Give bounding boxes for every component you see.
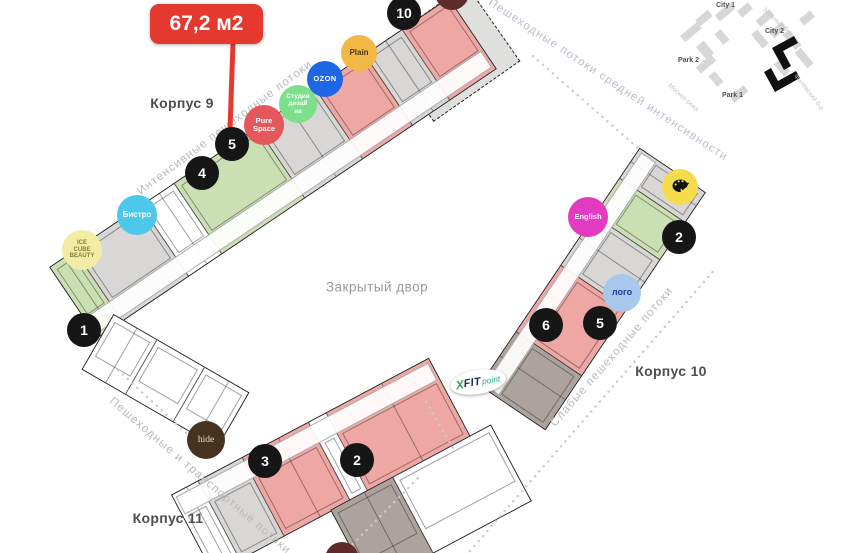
tenant-bistro[interactable]: Бистро: [117, 195, 157, 235]
unit-marker-number: 1: [80, 322, 88, 338]
tenant-label: лого: [612, 288, 632, 298]
tenant-art-studio[interactable]: [662, 169, 698, 205]
unit-marker-k10-2[interactable]: 2: [662, 220, 696, 254]
unit-marker-number: 4: [198, 165, 206, 181]
building-label-korpus9: Корпус 9: [150, 95, 213, 111]
tenant-plain[interactable]: Plain: [341, 35, 377, 71]
unit-marker-number: 6: [542, 317, 550, 333]
tenant-pure-space[interactable]: Pure Space: [244, 105, 284, 145]
unit-marker-number: 2: [675, 229, 683, 245]
palette-icon: [670, 177, 690, 197]
minimap-street-moskva-reka: Москва-река: [667, 82, 700, 113]
minimap-highlighted-buildings: [764, 36, 800, 92]
unit-marker-k11-3[interactable]: 3: [248, 444, 282, 478]
tenant-label: Space: [253, 125, 275, 133]
minimap-area-park1: Park 1: [722, 92, 743, 99]
unit-marker-k9-4[interactable]: 4: [185, 156, 219, 190]
tenant-label: hide: [198, 435, 214, 445]
tenant-logo[interactable]: лого: [603, 274, 641, 312]
unit-marker-k11-2[interactable]: 2: [340, 443, 374, 477]
minimap-area-park2: Park 2: [678, 57, 699, 64]
tenant-ozon[interactable]: OZON: [307, 61, 343, 97]
xfit-fit: FIT: [463, 376, 482, 391]
unit-marker-number: 10: [396, 5, 412, 21]
unit-marker-number: 2: [353, 452, 361, 468]
unit-marker-k10-6[interactable]: 6: [529, 308, 563, 342]
tenant-ice-cube-beauty[interactable]: ICE CUBE BEAUTY: [62, 230, 102, 270]
unit-marker-number: 5: [228, 136, 236, 152]
site-plan-canvas: Интенсивные пешеходные потоки Пешеходные…: [0, 0, 844, 553]
unit-marker-k10-5[interactable]: 5: [583, 306, 617, 340]
dotted-flow-weak-branch: [426, 402, 453, 448]
xfit-point: point: [481, 374, 501, 387]
tenant-english[interactable]: English: [568, 197, 608, 237]
tenant-label: на: [294, 108, 302, 115]
minimap-buildings: [680, 2, 815, 102]
unit-marker-k9-5[interactable]: 5: [215, 127, 249, 161]
dotted-flow-bottom: [348, 476, 420, 549]
area-callout-label: 67,2 м2: [170, 12, 244, 36]
building-label-korpus10: Корпус 10: [635, 363, 707, 379]
tenant-label: English: [574, 213, 601, 221]
tenant-label: дизай: [289, 100, 308, 107]
minimap-area-city1: City 1: [716, 2, 735, 9]
tenant-label: Plain: [349, 49, 368, 58]
unit-marker-k9-1[interactable]: 1: [67, 313, 101, 347]
tenant-hide[interactable]: hide: [187, 421, 225, 459]
building-label-korpus11: Корпус 11: [133, 510, 204, 526]
courtyard-label: Закрытый двор: [326, 280, 428, 295]
tenant-label: OZON: [313, 75, 336, 83]
tenant-label: Бистро: [123, 211, 152, 220]
tenant-label: CUBE: [73, 247, 90, 254]
minimap-street-filevsky: Филёвский б-р: [792, 72, 826, 112]
area-callout: 67,2 м2: [150, 4, 263, 44]
unit-marker-number: 5: [596, 315, 604, 331]
location-minimap: City 1 City 2 Park 2 Park 1 Зеленый б-р …: [660, 0, 844, 118]
tenant-label: BEAUTY: [70, 253, 95, 260]
unit-marker-number: 3: [261, 453, 269, 469]
tenant-label: ICE: [77, 240, 87, 247]
